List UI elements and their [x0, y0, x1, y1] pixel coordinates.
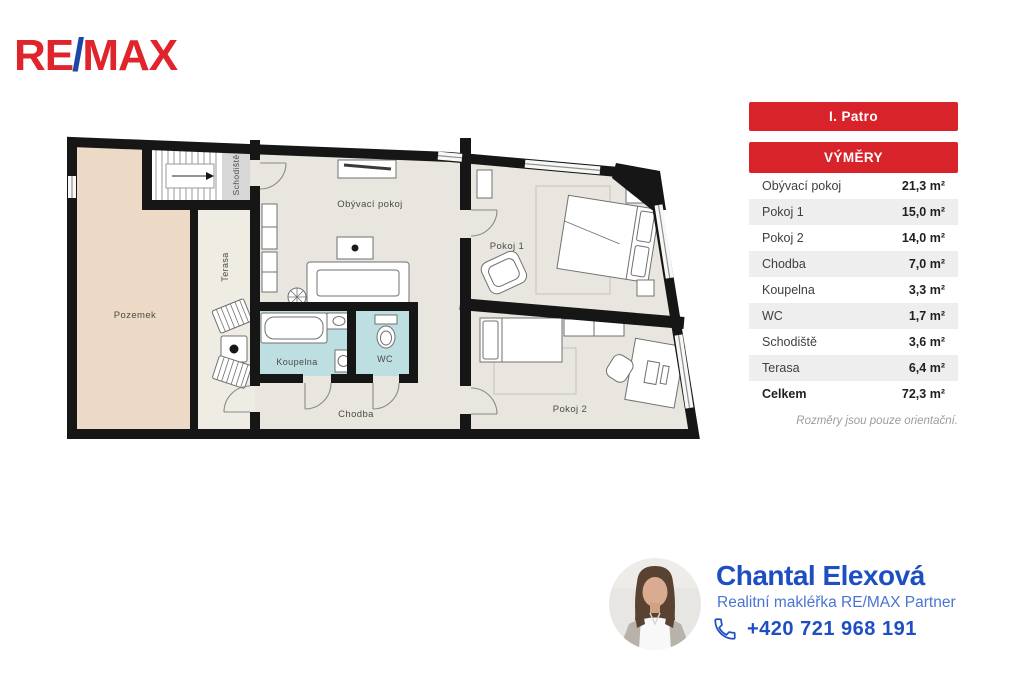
label-pokoj1: Pokoj 1	[490, 241, 525, 252]
row-label: Terasa	[762, 361, 800, 375]
flyer-canvas: RE/MAX	[0, 0, 1024, 682]
floor-plan-drawing: Pozemek Schodiště Terasa Obývací pokoj P…	[60, 130, 700, 440]
row-value: 6,4 m²	[909, 361, 945, 375]
label-schodiste: Schodiště	[231, 155, 241, 196]
label-koupelna: Koupelna	[276, 357, 317, 367]
table-row: Chodba7,0 m²	[749, 251, 958, 277]
row-label: WC	[762, 309, 783, 323]
table-row-total: Celkem72,3 m²	[749, 381, 958, 407]
agent-phone-number[interactable]: +420 721 968 191	[747, 618, 917, 641]
agent-role: Realitní makléřka RE/MAX Partner	[717, 594, 956, 612]
label-pozemek: Pozemek	[114, 310, 156, 321]
areas-panel: I. Patro VÝMĚRY Obývací pokoj21,3 m² Pok…	[749, 102, 958, 427]
row-label: Pokoj 2	[762, 231, 804, 245]
logo-slash: /	[72, 31, 83, 81]
label-pokoj2: Pokoj 2	[553, 404, 588, 415]
row-value: 72,3 m²	[902, 387, 945, 401]
phone-icon	[712, 616, 738, 642]
logo-re: RE	[14, 31, 73, 80]
remax-logo: RE/MAX	[14, 32, 177, 80]
label-wc: WC	[377, 354, 393, 364]
table-row: Schodiště3,6 m²	[749, 329, 958, 355]
row-value: 21,3 m²	[902, 179, 945, 193]
row-value: 1,7 m²	[909, 309, 945, 323]
table-row: Pokoj 115,0 m²	[749, 199, 958, 225]
agent-phone-row: +420 721 968 191	[712, 616, 917, 642]
row-value: 14,0 m²	[902, 231, 945, 245]
areas-title-bar: VÝMĚRY	[749, 142, 958, 173]
disclaimer-note: Rozměry jsou pouze orientační.	[749, 415, 958, 427]
row-label: Pokoj 1	[762, 205, 804, 219]
table-row: Pokoj 214,0 m²	[749, 225, 958, 251]
floor-title-bar: I. Patro	[749, 102, 958, 131]
logo-max: MAX	[82, 31, 177, 80]
row-label: Obývací pokoj	[762, 179, 841, 193]
agent-photo	[609, 558, 701, 650]
table-row: Terasa6,4 m²	[749, 355, 958, 381]
label-obyvaci-pokoj: Obývací pokoj	[337, 199, 402, 210]
row-value: 7,0 m²	[909, 257, 945, 271]
table-row: Obývací pokoj21,3 m²	[749, 173, 958, 199]
row-label: Celkem	[762, 387, 806, 401]
areas-table: Obývací pokoj21,3 m² Pokoj 115,0 m² Poko…	[749, 173, 958, 407]
row-value: 15,0 m²	[902, 205, 945, 219]
table-row: Koupelna3,3 m²	[749, 277, 958, 303]
agent-name: Chantal Elexová	[716, 560, 925, 592]
agent-avatar-graphic	[609, 558, 701, 650]
label-terasa: Terasa	[220, 252, 230, 281]
row-value: 3,6 m²	[909, 335, 945, 349]
label-chodba: Chodba	[338, 409, 374, 420]
table-row: WC1,7 m²	[749, 303, 958, 329]
row-label: Schodiště	[762, 335, 817, 349]
row-label: Koupelna	[762, 283, 815, 297]
row-value: 3,3 m²	[909, 283, 945, 297]
row-label: Chodba	[762, 257, 806, 271]
floor-plan: Pozemek Schodiště Terasa Obývací pokoj P…	[60, 130, 700, 440]
